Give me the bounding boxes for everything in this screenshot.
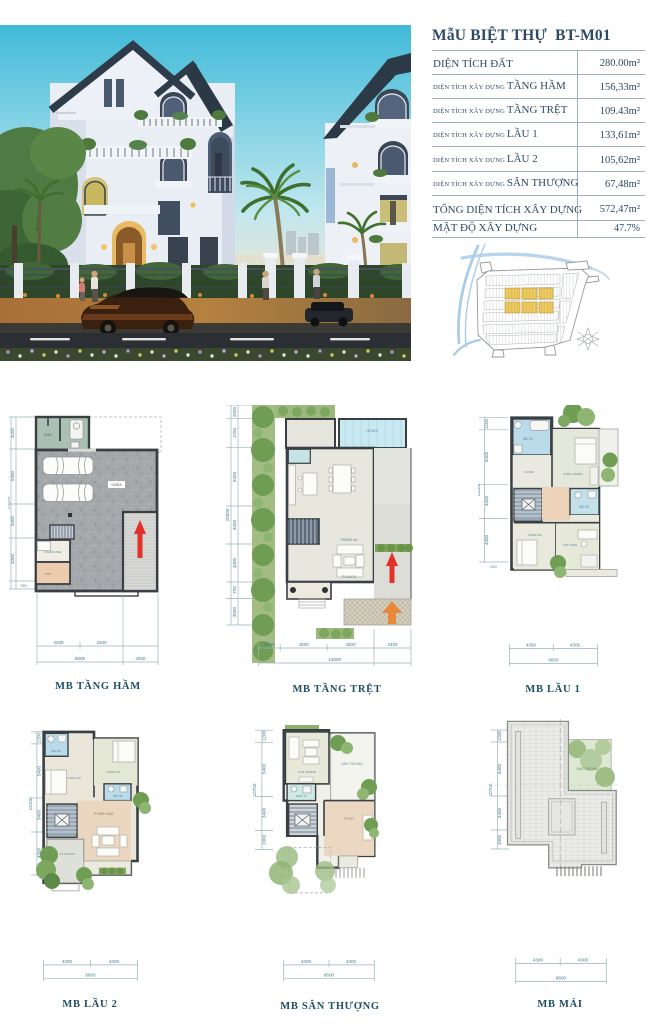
svg-text:8600: 8600 [85, 972, 96, 977]
svg-text:10700: 10700 [252, 783, 257, 796]
svg-text:700: 700 [232, 586, 237, 594]
svg-text:4300: 4300 [345, 642, 356, 647]
svg-text:P.THO: P.THO [344, 817, 354, 821]
svg-text:1200: 1200 [262, 730, 267, 741]
svg-text:3000: 3000 [232, 606, 237, 617]
svg-text:20000: 20000 [225, 508, 230, 521]
svg-text:P.SINH HOAT: P.SINH HOAT [94, 812, 114, 816]
svg-text:5400: 5400 [262, 763, 267, 774]
svg-text:4300: 4300 [53, 640, 64, 645]
svg-text:3200: 3200 [10, 427, 15, 438]
svg-text:P.NGU CHINH: P.NGU CHINH [563, 472, 582, 476]
svg-text:1250: 1250 [232, 427, 237, 438]
svg-text:3400: 3400 [387, 642, 398, 647]
svg-text:P.TR.THONG: P.TR.THONG [298, 770, 317, 774]
svg-text:4300: 4300 [298, 642, 309, 647]
svg-text:1200: 1200 [484, 418, 489, 429]
svg-text:WC 02: WC 02 [579, 505, 589, 509]
svg-text:4300: 4300 [232, 557, 237, 568]
svg-text:3400: 3400 [232, 519, 237, 530]
svg-text:5400: 5400 [497, 763, 502, 774]
svg-text:8600: 8600 [556, 976, 567, 981]
svg-text:KHO: KHO [45, 572, 52, 576]
svg-text:3400: 3400 [497, 807, 502, 818]
svg-text:WC 01: WC 01 [523, 437, 533, 441]
svg-text:3400: 3400 [262, 807, 267, 818]
svg-text:5400: 5400 [37, 765, 42, 776]
svg-text:P.NGU 03: P.NGU 03 [67, 776, 81, 780]
svg-text:4300: 4300 [10, 553, 15, 564]
svg-text:8600: 8600 [548, 657, 559, 662]
svg-text:4300: 4300 [62, 959, 73, 964]
svg-text:4300: 4300 [578, 957, 589, 962]
svg-text:HO BOI: HO BOI [366, 429, 378, 433]
svg-text:8600: 8600 [324, 972, 335, 977]
svg-text:GARA: GARA [111, 483, 122, 487]
svg-text:8600: 8600 [75, 656, 86, 661]
svg-text:1200: 1200 [497, 730, 502, 741]
svg-text:2000: 2000 [232, 406, 237, 417]
svg-text:13100: 13100 [478, 483, 481, 496]
svg-text:4300: 4300 [526, 643, 537, 648]
svg-text:13100: 13100 [28, 797, 33, 810]
svg-text:4300: 4300 [484, 534, 489, 545]
svg-text:750: 750 [20, 583, 27, 588]
svg-text:4300: 4300 [533, 957, 544, 962]
svg-text:3400: 3400 [135, 656, 146, 661]
svg-text:14000: 14000 [328, 657, 341, 662]
svg-text:3400: 3400 [37, 809, 42, 820]
svg-text:3400: 3400 [484, 495, 489, 506]
svg-text:4300: 4300 [301, 959, 312, 964]
svg-text:3400: 3400 [10, 515, 15, 526]
svg-text:5400: 5400 [10, 470, 15, 481]
svg-text:P.KHACH: P.KHACH [342, 575, 356, 579]
svg-text:P.GIUP VIEC: P.GIUP VIEC [44, 550, 62, 554]
svg-text:4300: 4300 [109, 959, 120, 964]
svg-text:THU VIEN: THU VIEN [563, 543, 577, 547]
svg-text:KHO: KHO [44, 433, 52, 437]
svg-text:4300: 4300 [570, 643, 581, 648]
svg-text:1900: 1900 [497, 834, 502, 845]
svg-text:WC 04: WC 04 [113, 794, 123, 798]
svg-text:SAN THUONG: SAN THUONG [341, 762, 363, 766]
svg-text:1900: 1900 [262, 834, 267, 845]
svg-text:PHONG AN: PHONG AN [341, 538, 359, 542]
svg-text:2000: 2000 [264, 642, 275, 647]
svg-text:1200: 1200 [37, 732, 42, 743]
svg-text:10700: 10700 [488, 783, 493, 796]
svg-text:GIAT .P: GIAT .P [296, 794, 306, 798]
svg-text:SAN THUONG: SAN THUONG [576, 767, 598, 771]
svg-text:S.PHOI: S.PHOI [524, 470, 534, 474]
svg-text:WC 03: WC 03 [51, 749, 61, 753]
svg-text:5400: 5400 [232, 471, 237, 482]
svg-text:4300: 4300 [96, 640, 107, 645]
svg-text:P.NGU 04: P.NGU 04 [106, 770, 120, 774]
svg-text:100: 100 [490, 564, 497, 569]
svg-text:4300: 4300 [346, 959, 357, 964]
svg-text:13100: 13100 [8, 496, 11, 509]
svg-text:S.THUONG: S.THUONG [59, 852, 76, 856]
svg-text:5400: 5400 [484, 451, 489, 462]
svg-text:P.NGU 02: P.NGU 02 [528, 533, 542, 537]
